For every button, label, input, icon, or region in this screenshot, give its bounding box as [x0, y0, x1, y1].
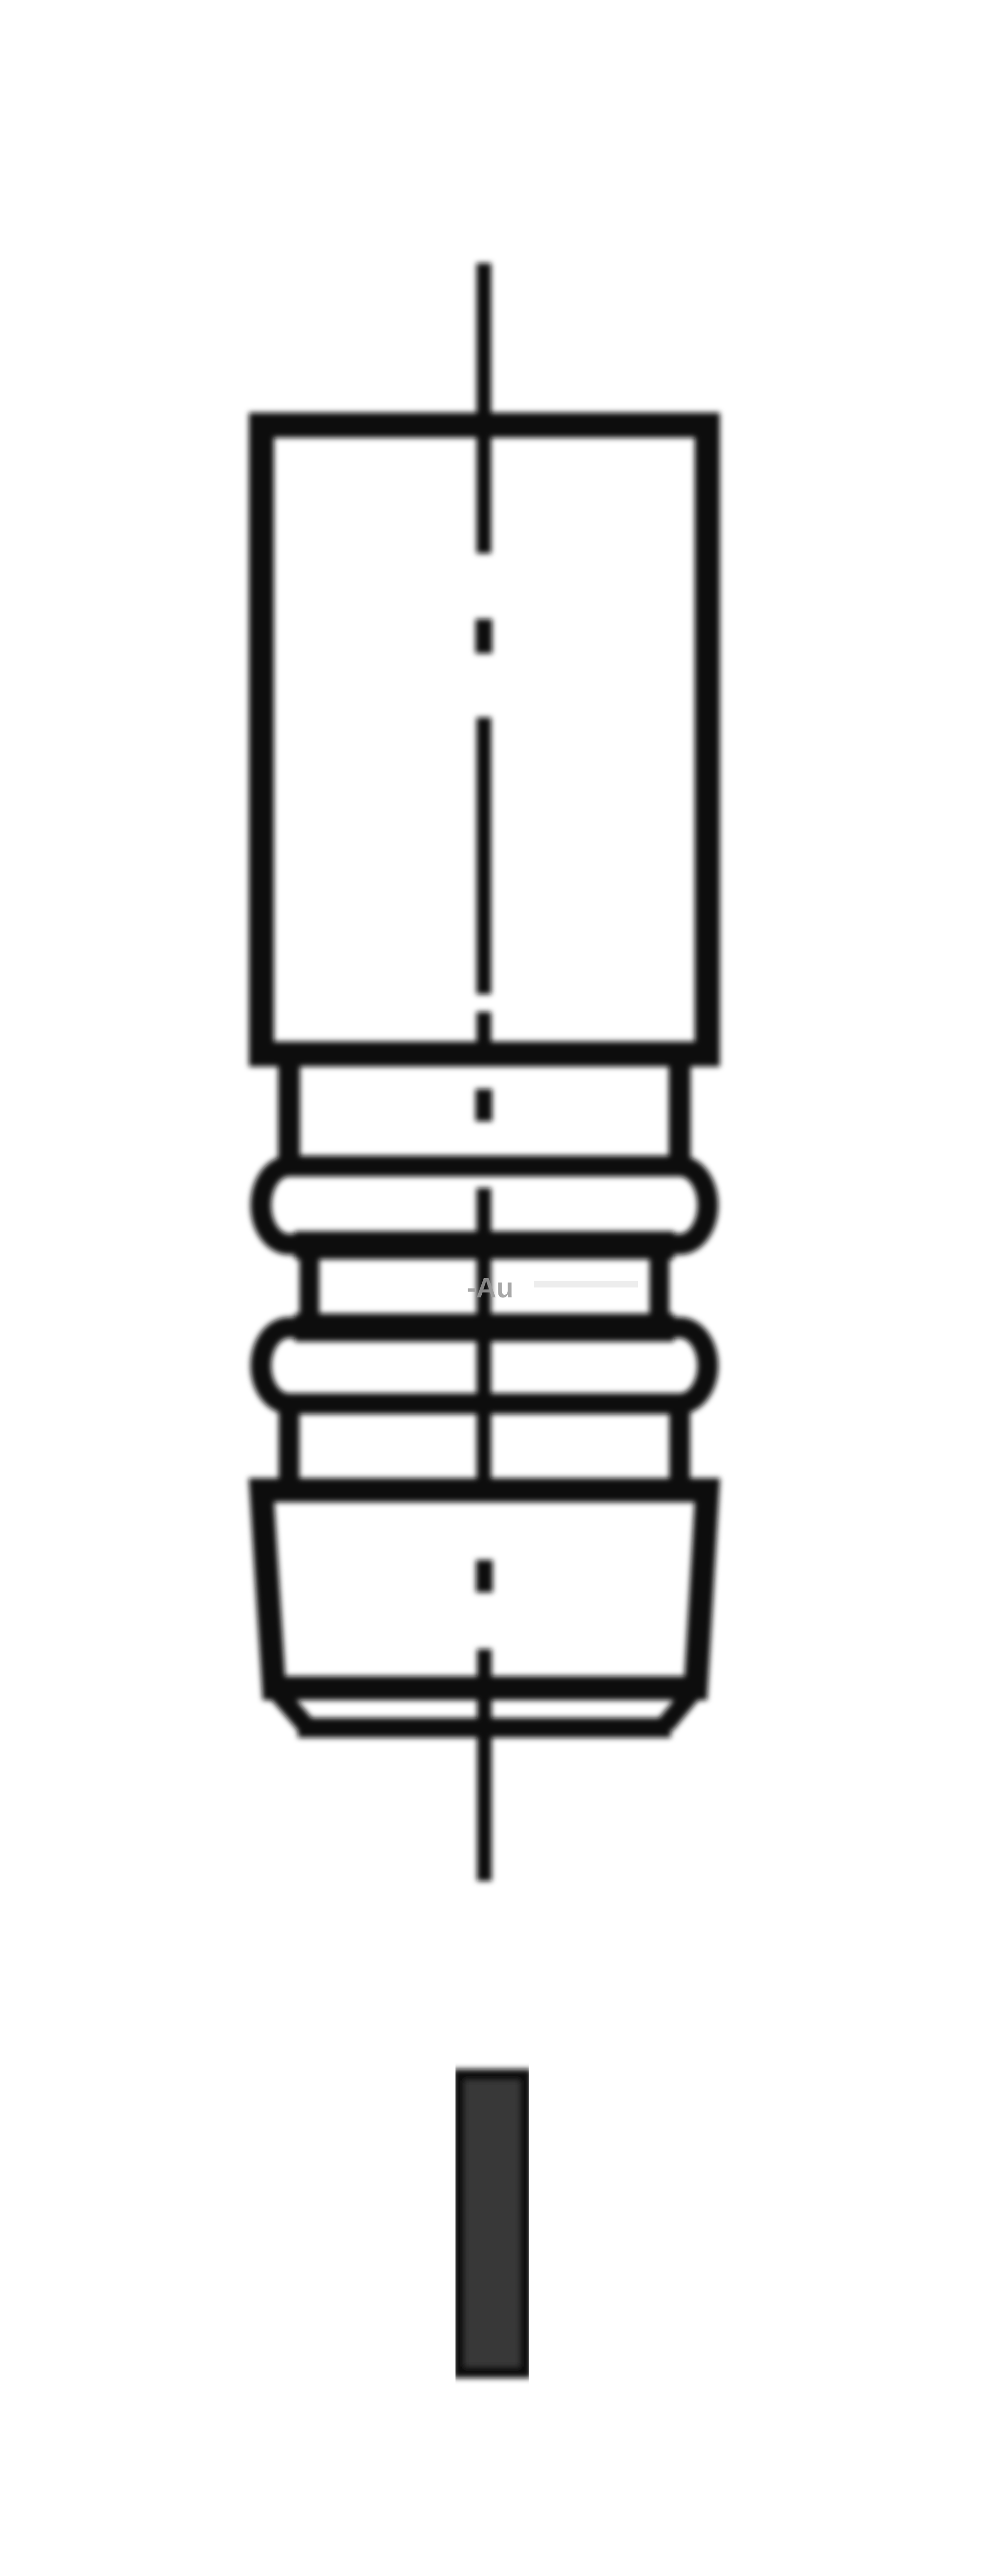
svg-text:-Au: -Au	[467, 1272, 514, 1304]
